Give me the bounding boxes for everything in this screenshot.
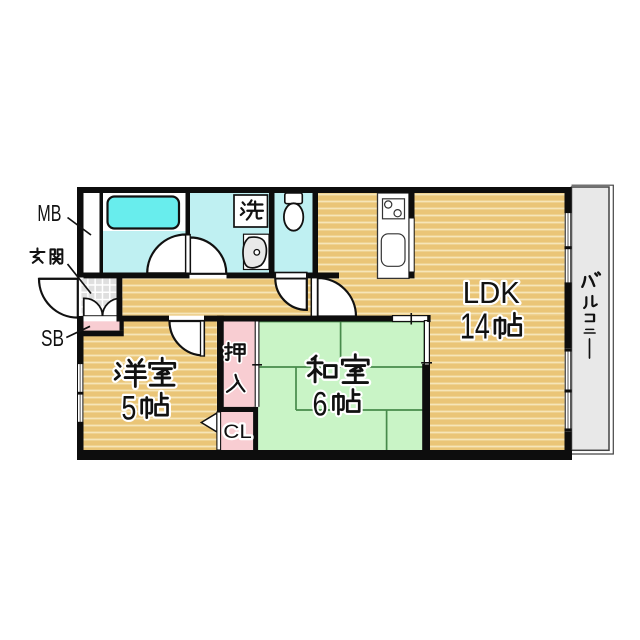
svg-text:14: 14 <box>460 306 490 347</box>
svg-text:SB: SB <box>41 325 64 351</box>
svg-text:5: 5 <box>121 390 136 428</box>
svg-text:6: 6 <box>313 386 328 424</box>
svg-text:MB: MB <box>37 200 61 226</box>
svg-text:CL: CL <box>223 421 252 443</box>
